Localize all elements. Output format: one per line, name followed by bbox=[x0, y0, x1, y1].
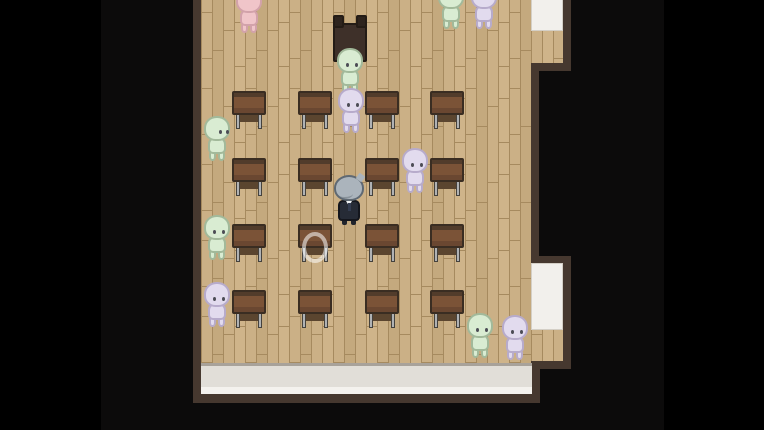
teacher-podium bbox=[333, 15, 367, 62]
event-ring bbox=[302, 232, 328, 263]
podium-left-post bbox=[333, 15, 344, 28]
player-character bbox=[334, 175, 364, 225]
podium-body bbox=[333, 23, 367, 62]
player-hair bbox=[334, 175, 364, 201]
wall-top-right bbox=[563, 0, 571, 71]
podium-right-post bbox=[356, 15, 367, 28]
bottom-board-highlight bbox=[201, 387, 532, 394]
wall-left bbox=[193, 0, 201, 403]
game-stage bbox=[0, 0, 764, 430]
wall-right bbox=[531, 63, 539, 263]
wall-bottom bbox=[193, 394, 540, 403]
wall-alcove-right bbox=[563, 256, 571, 369]
wall-corner-bottom-right bbox=[532, 363, 540, 403]
bottom-board bbox=[201, 366, 532, 387]
player-tie bbox=[348, 203, 351, 211]
door-right-alcove[interactable] bbox=[531, 263, 563, 330]
door-top-right[interactable] bbox=[531, 0, 563, 31]
